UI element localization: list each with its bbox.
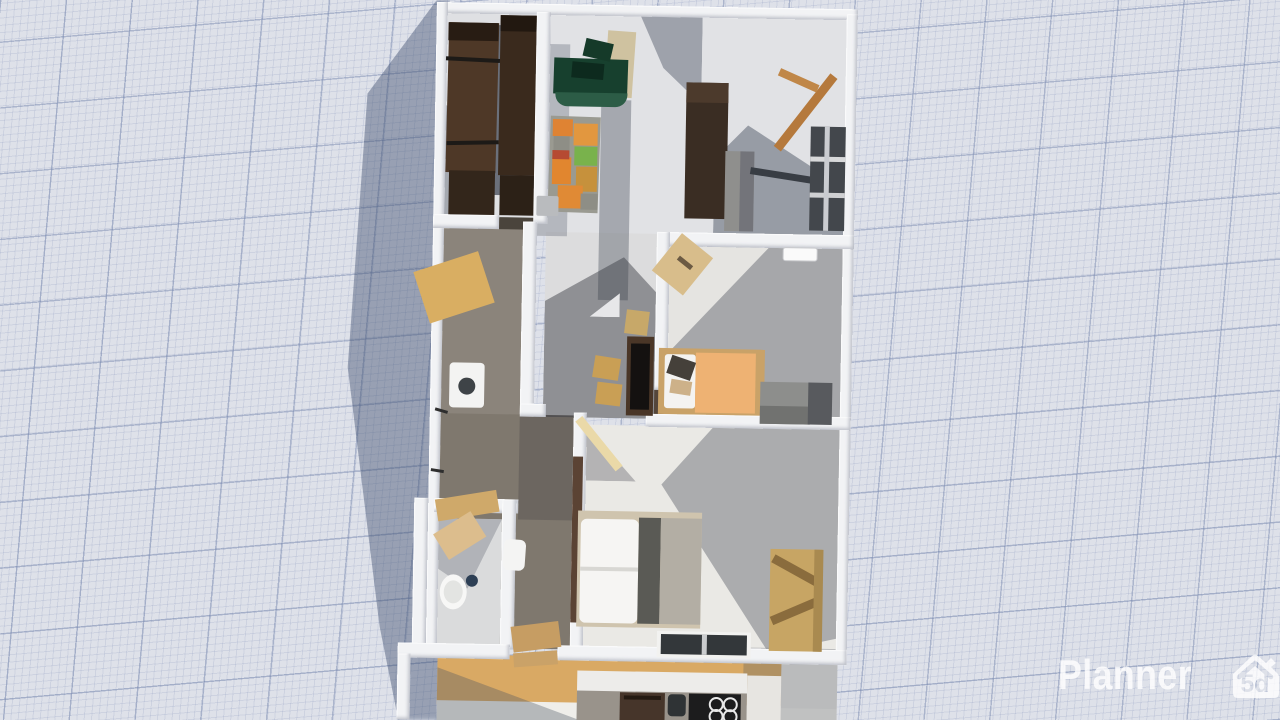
watermark-brand-text: Planner [1058, 651, 1192, 699]
oven-handle [624, 695, 661, 700]
rug-patch-gray-2 [580, 194, 597, 210]
dresser-dark-right [808, 383, 833, 425]
rug-patch-orange-4 [557, 185, 582, 208]
desk-green-items [571, 61, 604, 80]
drawer-unit-gray-side [739, 151, 754, 231]
bunk-bed-right-head [501, 15, 537, 32]
stool-beige-top[interactable] [624, 309, 650, 336]
burner-4 [722, 709, 737, 720]
rug-patch-orange-2 [574, 123, 598, 145]
water-heater[interactable] [502, 539, 526, 571]
cabinet-tall-front [630, 343, 650, 409]
rug-stripes-red [552, 150, 569, 159]
bunk-bed-left-head [448, 22, 498, 41]
wall-utility-right [520, 222, 537, 414]
shelf-unit-side [813, 550, 824, 652]
wall-outer-bottom-left [398, 642, 510, 659]
apartment-floor-plan[interactable] [425, 2, 862, 720]
storage-box-gray [536, 196, 558, 216]
sofa-dark-strip [637, 518, 661, 624]
desk-green-front [555, 92, 627, 107]
shadow-corridor-upper [518, 415, 576, 521]
planner5d-3d-viewport[interactable]: Planner 5d [0, 0, 1280, 720]
rug-patch-green [574, 146, 597, 165]
stool-wood-1[interactable] [592, 355, 621, 381]
wall-kitchen-left-stub [396, 653, 410, 719]
bunk-bed-right[interactable] [498, 15, 537, 176]
faucet-dark [668, 694, 686, 716]
bed-mattress-orange [695, 353, 756, 414]
dresser-gray-front [760, 406, 810, 425]
wall-bedroom-topleft-bottom [433, 214, 499, 229]
planner5d-watermark: Planner 5d [1058, 646, 1280, 704]
burner-3 [708, 709, 723, 720]
planner5d-house-icon: 5d [1225, 646, 1280, 704]
stool-wood-2[interactable] [595, 382, 622, 407]
rug-patch-orange-3 [552, 157, 571, 184]
floor-hatch-split [702, 635, 707, 655]
wardrobe-dark-top [686, 82, 728, 103]
ceiling-light[interactable] [783, 247, 818, 262]
bunk-bed-left[interactable] [445, 22, 499, 173]
bunk-bed-left-steps [448, 170, 495, 215]
wall-hall-corner [520, 404, 546, 417]
kitchen-cabinet-white[interactable] [746, 676, 781, 720]
wall-bathroom-left [412, 498, 429, 648]
sofa-gray-part [659, 518, 702, 625]
rug-patch-orange-1 [553, 119, 573, 136]
bunk-bed-right-steps [499, 175, 534, 216]
